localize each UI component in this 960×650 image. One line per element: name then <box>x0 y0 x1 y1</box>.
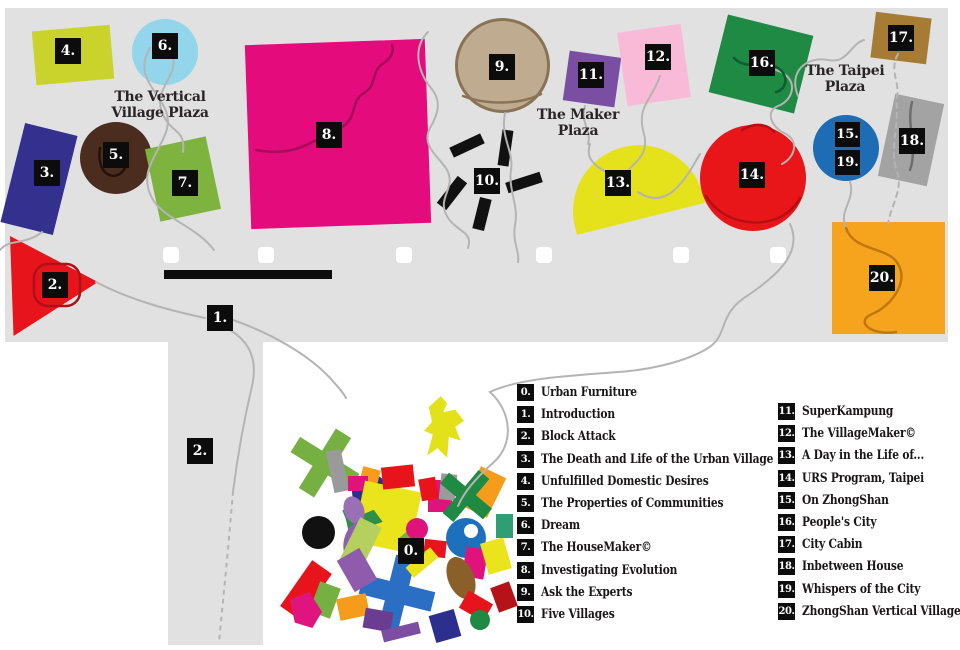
map-chip-13: 13. <box>605 170 631 196</box>
legend-number-chip: 11. <box>778 403 795 420</box>
map-chip-8: 8. <box>316 122 342 148</box>
legend-number-chip: 3. <box>517 451 534 468</box>
legend-item-16: 16.People's City <box>778 514 893 531</box>
vertical-village-plaza-label: The VerticalVillage Plaza <box>111 90 208 121</box>
legend-item-8: 8.Investigating Evolution <box>517 562 707 579</box>
legend-label: Investigating Evolution <box>541 563 677 578</box>
map-chip-2: 2. <box>187 438 213 464</box>
legend-number-chip: 6. <box>517 517 534 534</box>
legend-label: The Properties of Communities <box>541 496 723 511</box>
legend-item-18: 18.Inbetween House <box>778 558 926 575</box>
legend-item-10: 10.Five Villages <box>517 606 631 623</box>
legend-number-chip: 12. <box>778 425 795 442</box>
maker-plaza-label-line: Plaza <box>537 124 619 140</box>
legend-item-2: 2.Block Attack <box>517 428 632 445</box>
legend-number-chip: 14. <box>778 470 795 487</box>
legend-item-15: 15.On ZhongShan <box>778 492 908 509</box>
legend-label: Dream <box>541 518 580 533</box>
map-chip-15: 15. <box>835 122 860 147</box>
legend-item-12: 12.The VillageMaker© <box>778 425 941 442</box>
map-chip-4: 4. <box>55 38 81 64</box>
legend-item-7: 7.The HouseMaker© <box>517 539 676 556</box>
legend-item-17: 17.City Cabin <box>778 536 876 553</box>
map-chip-18: 18. <box>899 128 925 154</box>
taipei-plaza-label-line: The Taipei <box>806 64 885 80</box>
legend-label: Ask the Experts <box>541 585 632 600</box>
map-chip-6: 6. <box>152 33 178 59</box>
legend-number-chip: 5. <box>517 495 534 512</box>
map-chip-20: 20. <box>869 265 895 291</box>
legend-number-chip: 15. <box>778 492 795 509</box>
legend-item-6: 6.Dream <box>517 517 589 534</box>
legend-number-chip: 18. <box>778 558 795 575</box>
legend-label: Whispers of the City <box>802 582 920 597</box>
legend-label: Unfulfilled Domestic Desires <box>541 474 709 489</box>
legend-item-13: 13.A Day in the Life of... <box>778 447 951 464</box>
legend-number-chip: 13. <box>778 447 795 464</box>
legend-item-1: 1.Introduction <box>517 406 631 423</box>
map-chip-9: 9. <box>489 54 515 80</box>
legend-item-4: 4.Unfulfilled Domestic Desires <box>517 473 745 490</box>
legend-number-chip: 9. <box>517 584 534 601</box>
map-chip-17: 17. <box>888 25 914 51</box>
legend-label: City Cabin <box>802 537 862 552</box>
legend-number-chip: 20. <box>778 603 795 620</box>
legend-number-chip: 10. <box>517 606 534 623</box>
legend-number-chip: 0. <box>517 384 534 401</box>
legend-label: The HouseMaker© <box>541 540 652 555</box>
legend-item-14: 14.URS Program, Taipei <box>778 470 951 487</box>
legend-label: Five Villages <box>541 607 615 622</box>
taipei-plaza-label: The TaipeiPlaza <box>806 64 885 95</box>
legend-label: Introduction <box>541 407 615 422</box>
legend-number-chip: 19. <box>778 581 795 598</box>
legend-label: SuperKampung <box>802 404 893 419</box>
maker-plaza-label-line: The Maker <box>537 108 619 124</box>
map-chip-7: 7. <box>172 170 198 196</box>
legend-number-chip: 2. <box>517 428 534 445</box>
legend-number-chip: 16. <box>778 514 795 531</box>
map-chip-12: 12. <box>645 44 671 70</box>
legend-label: URS Program, Taipei <box>802 471 924 486</box>
legend-label: Block Attack <box>541 429 616 444</box>
legend-number-chip: 8. <box>517 562 534 579</box>
legend-item-0: 0.Urban Furniture <box>517 384 658 401</box>
map-chip-3: 3. <box>34 160 60 186</box>
map-chip-11: 11. <box>578 62 604 88</box>
legend-item-19: 19.Whispers of the City <box>778 581 946 598</box>
map-chip-5: 5. <box>103 142 129 168</box>
legend-item-5: 5.The Properties of Communities <box>517 495 763 512</box>
legend-label: People's City <box>802 515 876 530</box>
legend-label: Inbetween House <box>802 559 903 574</box>
legend-label: The Death and Life of the Urban Village <box>541 452 773 467</box>
vertical-village-plaza-label-line: Village Plaza <box>111 106 208 122</box>
legend-label: On ZhongShan <box>802 493 889 508</box>
map-chip-0: 0. <box>398 538 424 564</box>
map-chip-2: 2. <box>42 272 68 298</box>
exhibition-map-poster: 4.6.3.5.7.8.2.1.2.9.10.11.12.13.14.15.19… <box>0 0 960 650</box>
legend-label: The VillageMaker© <box>802 426 916 441</box>
legend-item-11: 11.SuperKampung <box>778 403 913 420</box>
taipei-plaza-label-line: Plaza <box>806 80 885 96</box>
legend-item-20: 20.ZhongShan Vertical Village <box>778 603 960 620</box>
legend-number-chip: 17. <box>778 536 795 553</box>
map-chip-16: 16. <box>749 50 775 76</box>
legend-number-chip: 4. <box>517 473 534 490</box>
map-chip-10: 10. <box>474 168 500 194</box>
map-chip-19: 19. <box>835 150 860 175</box>
vertical-village-plaza-label-line: The Vertical <box>111 90 208 106</box>
legend-number-chip: 1. <box>517 406 534 423</box>
legend-label: ZhongShan Vertical Village <box>802 604 960 619</box>
maker-plaza-label: The MakerPlaza <box>537 108 619 139</box>
legend-label: A Day in the Life of... <box>802 448 924 463</box>
map-chip-14: 14. <box>739 162 765 188</box>
legend-label: Urban Furniture <box>541 385 637 400</box>
legend-item-9: 9.Ask the Experts <box>517 584 652 601</box>
legend-number-chip: 7. <box>517 539 534 556</box>
map-chip-1: 1. <box>207 305 233 331</box>
